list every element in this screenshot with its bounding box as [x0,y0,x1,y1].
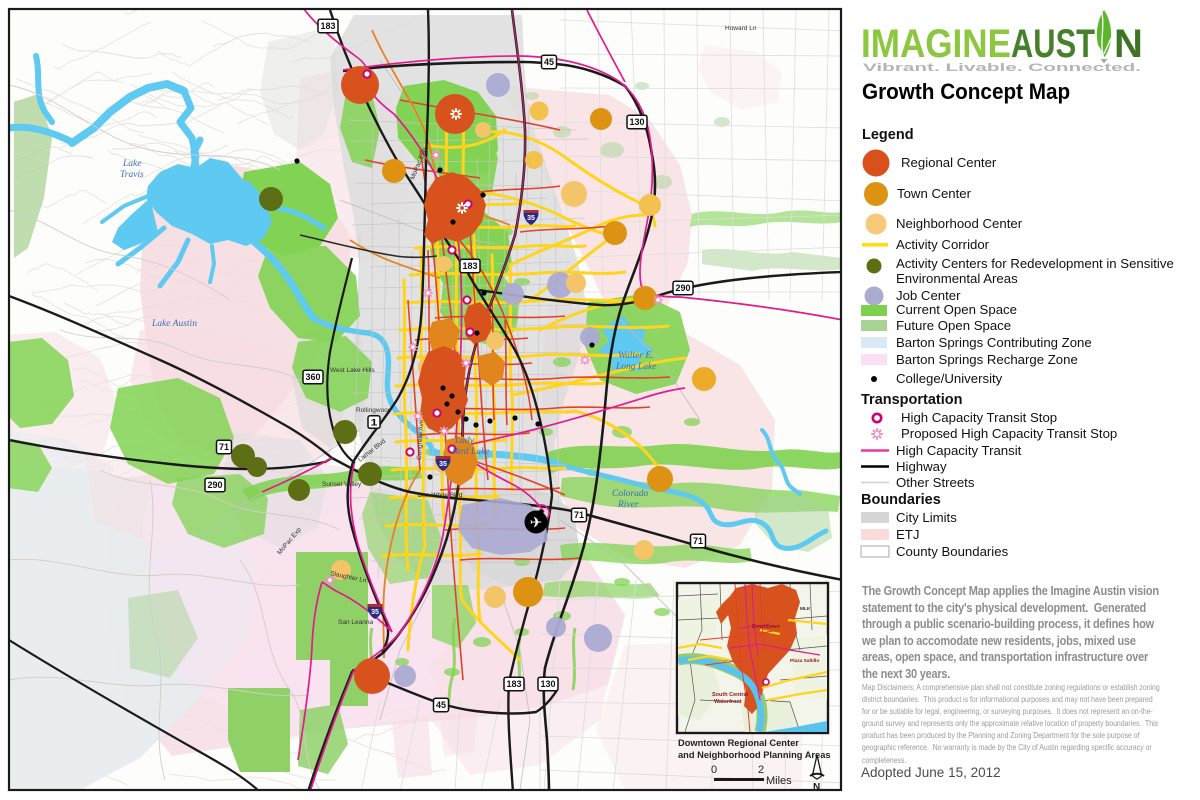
svg-text:High Capacity Transit: High Capacity Transit [896,443,1022,458]
svg-text:Transportation: Transportation [861,392,963,408]
svg-text:Sunset Valley: Sunset Valley [322,481,362,488]
svg-text:✈: ✈ [530,515,543,532]
svg-text:130: 130 [630,117,645,127]
svg-text:San Leanna: San Leanna [338,619,373,626]
svg-text:Long Lake: Long Lake [615,362,656,372]
svg-text:Bird Lake: Bird Lake [452,447,489,457]
svg-text:71: 71 [693,536,703,546]
svg-text:County Boundaries: County Boundaries [896,544,1009,559]
svg-text:College/University: College/University [896,371,1003,386]
svg-text:Lake Austin: Lake Austin [151,319,197,329]
svg-text:Other Streets: Other Streets [896,475,975,490]
svg-text:Downtown: Downtown [752,624,780,630]
svg-text:35: 35 [371,609,379,616]
svg-text:Downtown Regional Center: Downtown Regional Center [678,738,799,748]
svg-text:130: 130 [541,679,556,689]
svg-text:Lake: Lake [122,159,141,169]
svg-text:Regional Center: Regional Center [901,155,997,170]
svg-text:Future Open Space: Future Open Space [896,318,1011,333]
svg-text:Rollingwood: Rollingwood [356,407,392,414]
svg-text:183: 183 [507,679,522,689]
svg-text:Highway: Highway [896,459,947,474]
svg-text:Proposed High Capacity Transit: Proposed High Capacity Transit Stop [901,426,1117,441]
svg-text:Miles: Miles [766,775,792,787]
svg-text:290: 290 [676,283,691,293]
svg-text:Neighborhood Center: Neighborhood Center [896,216,1023,231]
svg-text:Activity Corridor: Activity Corridor [896,237,990,252]
svg-text:Town Center: Town Center [897,186,972,201]
svg-text:0: 0 [711,764,717,776]
svg-text:Legend: Legend [862,127,914,143]
svg-text:1: 1 [371,417,378,427]
svg-text:High Capacity Transit Stop: High Capacity Transit Stop [901,410,1057,425]
svg-text:183: 183 [321,21,336,31]
svg-text:Colorado: Colorado [612,489,649,499]
svg-text:183: 183 [463,261,478,271]
svg-text:Walter E.: Walter E. [618,351,654,361]
svg-text:City Limits: City Limits [896,510,957,525]
svg-text:South Central: South Central [712,692,749,698]
svg-text:45: 45 [436,700,446,710]
svg-text:290: 290 [208,480,223,490]
svg-text:Activity Centers for Redevelop: Activity Centers for Redevelopment in Se… [896,256,1174,271]
svg-text:Travis: Travis [120,170,144,180]
svg-text:and Neighborhood Planning Area: and Neighborhood Planning Areas [678,750,831,760]
svg-text:River: River [617,500,639,510]
svg-text:Plaza Saltillo: Plaza Saltillo [790,658,819,664]
svg-text:360: 360 [306,372,321,382]
svg-text:Howard Ln: Howard Ln [725,25,757,32]
svg-text:2: 2 [758,764,764,776]
svg-text:35: 35 [439,461,447,468]
svg-text:MLK: MLK [800,606,811,612]
svg-text:Lady: Lady [454,436,475,446]
svg-text:West Lake Hills: West Lake Hills [330,367,375,374]
svg-text:Job Center: Job Center [896,288,961,303]
svg-text:ETJ: ETJ [896,527,919,542]
svg-text:71: 71 [574,510,584,520]
svg-text:45: 45 [544,57,554,67]
svg-text:Barton Springs Recharge Zone: Barton Springs Recharge Zone [896,352,1078,367]
svg-text:Barton Springs Contributing Zo: Barton Springs Contributing Zone [896,335,1092,350]
svg-text:Environmental Areas: Environmental Areas [896,271,1018,286]
svg-text:Ben White Blvd: Ben White Blvd [418,492,463,499]
svg-text:71: 71 [219,442,229,452]
svg-text:N: N [813,782,820,793]
svg-text:Boundaries: Boundaries [861,492,941,508]
svg-text:35: 35 [527,215,535,222]
svg-text:Waterfront: Waterfront [714,699,742,705]
svg-text:Current Open Space: Current Open Space [896,302,1017,317]
